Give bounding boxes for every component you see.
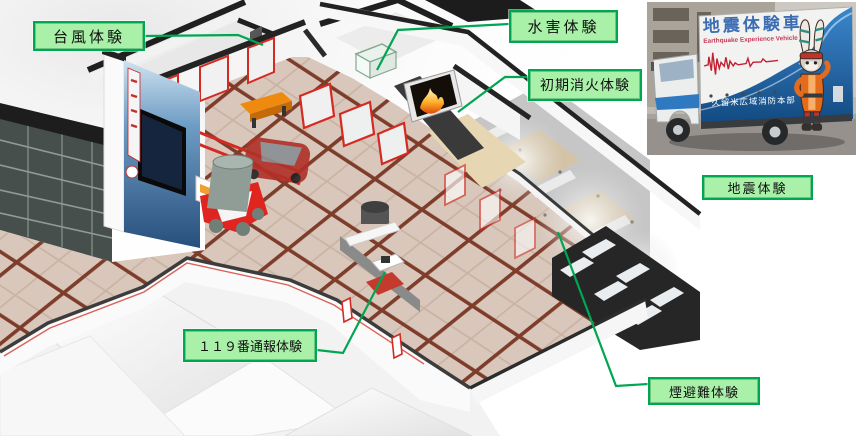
label-flood-experience: 水害体験: [509, 10, 618, 43]
label-emergency-call-experience: １１９番通報体験: [183, 329, 317, 362]
round-logo: [126, 166, 138, 178]
label-earthquake-experience: 地震体験: [702, 175, 813, 200]
label-typhoon-experience: 台風体験: [33, 21, 145, 51]
label-typhoon-text: 台風体験: [53, 26, 125, 47]
label-initial-fire-text: 初期消火体験: [540, 75, 630, 95]
label-initial-fire-experience: 初期消火体験: [528, 69, 642, 101]
floorplan-3d-illustration: 地震体験車 Earthquake Experience Vehicle 久留米広…: [0, 0, 858, 436]
earthquake-vehicle-photo: 地震体験車 Earthquake Experience Vehicle 久留米広…: [647, 2, 856, 155]
label-earthquake-text: 地震体験: [727, 178, 787, 197]
disaster-center-floorplan-figure: 地震体験車 Earthquake Experience Vehicle 久留米広…: [0, 0, 858, 436]
label-emergency-call-text: １１９番通報体験: [198, 336, 302, 355]
telephone: [381, 256, 390, 263]
label-flood-text: 水害体験: [527, 16, 599, 37]
vehicle-title-jp: 地震体験車: [702, 13, 803, 36]
label-smoke-evacuation-experience: 煙避難体験: [648, 377, 760, 405]
label-smoke-evacuation-text: 煙避難体験: [669, 382, 739, 401]
dark-cylinder-bin: [361, 201, 389, 224]
